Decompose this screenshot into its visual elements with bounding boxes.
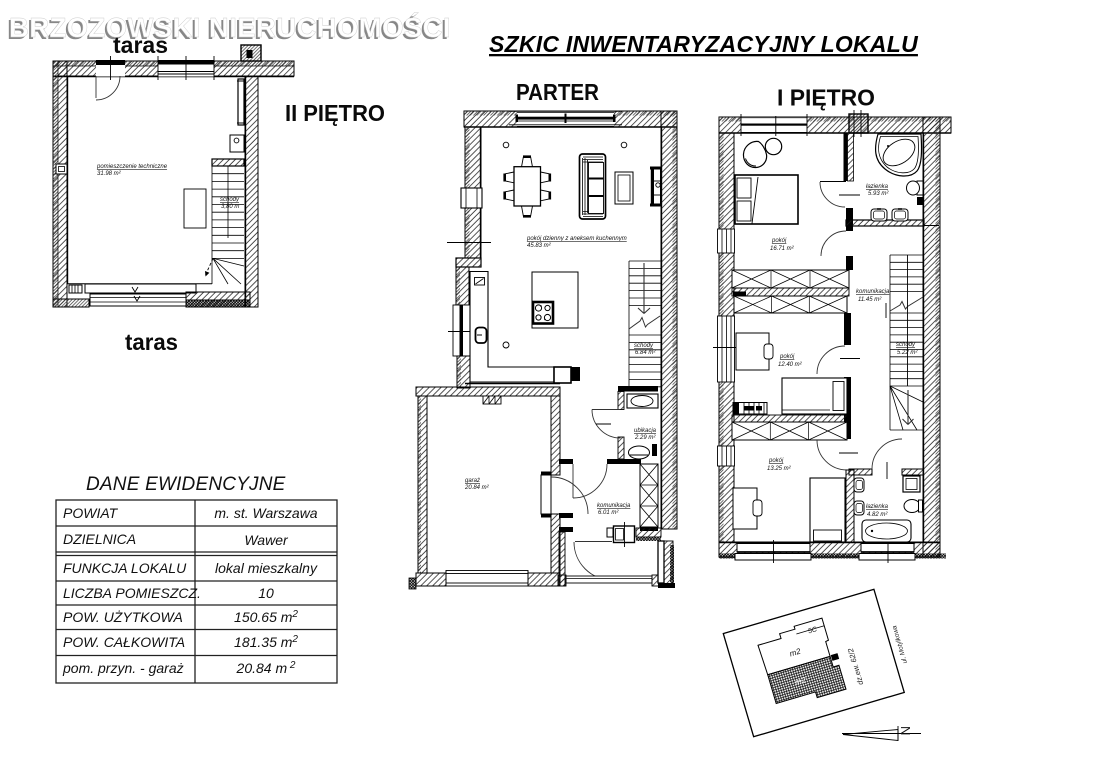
svg-text:DANE EWIDENCYJNE: DANE EWIDENCYJNE (86, 474, 286, 495)
svg-text:pokój: pokój (771, 238, 787, 244)
svg-text:PARTER: PARTER (516, 79, 599, 105)
svg-text:150.65 m2: 150.65 m2 (234, 609, 298, 625)
svg-text:6.01 m²: 6.01 m² (598, 510, 619, 516)
svg-text:12.40 m²: 12.40 m² (778, 362, 803, 368)
svg-text:lokal mieszkalny: lokal mieszkalny (215, 560, 318, 576)
svg-text:łazienka: łazienka (866, 504, 889, 510)
svg-text:N: N (898, 726, 913, 735)
svg-text:31.98 m²: 31.98 m² (97, 171, 122, 177)
svg-text:II PIĘTRO: II PIĘTRO (285, 100, 385, 126)
svg-text:POW. UŻYTKOWA: POW. UŻYTKOWA (63, 609, 183, 625)
svg-text:16.71 m²: 16.71 m² (770, 246, 795, 252)
svg-text:ubikacja: ubikacja (634, 428, 657, 434)
svg-text:pokój dzienny z aneksem kuchen: pokój dzienny z aneksem kuchennym (526, 236, 627, 242)
svg-text:10: 10 (258, 585, 274, 601)
svg-text:pom. przyn. - garaż: pom. przyn. - garaż (62, 660, 184, 676)
svg-text:6.84 m²: 6.84 m² (635, 350, 656, 356)
svg-text:13.25 m²: 13.25 m² (767, 466, 792, 472)
svg-text:schody: schody (896, 342, 916, 348)
svg-text:LICZBA POMIESZCZ.: LICZBA POMIESZCZ. (63, 585, 201, 601)
svg-text:POWIAT: POWIAT (63, 505, 119, 521)
svg-text:I PIĘTRO: I PIĘTRO (777, 85, 875, 111)
svg-text:garaż: garaż (465, 478, 480, 484)
svg-text:20.84 m 2: 20.84 m 2 (236, 660, 296, 676)
svg-text:181.35 m2: 181.35 m2 (234, 634, 298, 650)
svg-text:FUNKCJA LOKALU: FUNKCJA LOKALU (63, 560, 187, 576)
svg-text:SZKIC INWENTARYZACYJNY LOKALU: SZKIC INWENTARYZACYJNY LOKALU (489, 31, 919, 57)
svg-text:komunikacja: komunikacja (597, 503, 631, 509)
svg-text:pomieszczenie techniczne: pomieszczenie techniczne (96, 164, 168, 170)
svg-text:BRZOZOWSKI NIERUCHOMOŚCI: BRZOZOWSKI NIERUCHOMOŚCI (9, 12, 451, 43)
svg-text:schody: schody (220, 197, 240, 203)
svg-text:DZIELNICA: DZIELNICA (63, 531, 136, 547)
svg-text:20.84 m²: 20.84 m² (464, 485, 490, 491)
svg-text:2.29 m²: 2.29 m² (634, 435, 656, 441)
svg-text:łazienka: łazienka (866, 184, 889, 190)
svg-text:3,80 m: 3,80 m (221, 204, 239, 210)
svg-text:m. st. Warszawa: m. st. Warszawa (214, 505, 317, 521)
svg-text:taras: taras (125, 329, 178, 355)
svg-text:pokój: pokój (779, 354, 795, 360)
svg-text:45.83 m²: 45.83 m² (527, 243, 552, 249)
svg-text:taras: taras (113, 32, 168, 58)
svg-text:Wawer: Wawer (244, 532, 289, 548)
svg-text:POW. CAŁKOWITA: POW. CAŁKOWITA (63, 634, 185, 650)
svg-text:11.45 m²: 11.45 m² (858, 297, 882, 303)
svg-text:5.93 m²: 5.93 m² (868, 191, 889, 197)
svg-text:pokój: pokój (768, 458, 784, 464)
svg-text:5.22 m²: 5.22 m² (897, 350, 918, 356)
svg-text:4.82 m²: 4.82 m² (867, 512, 888, 518)
svg-text:komunikacja: komunikacja (856, 289, 890, 295)
svg-text:schody: schody (634, 343, 654, 349)
